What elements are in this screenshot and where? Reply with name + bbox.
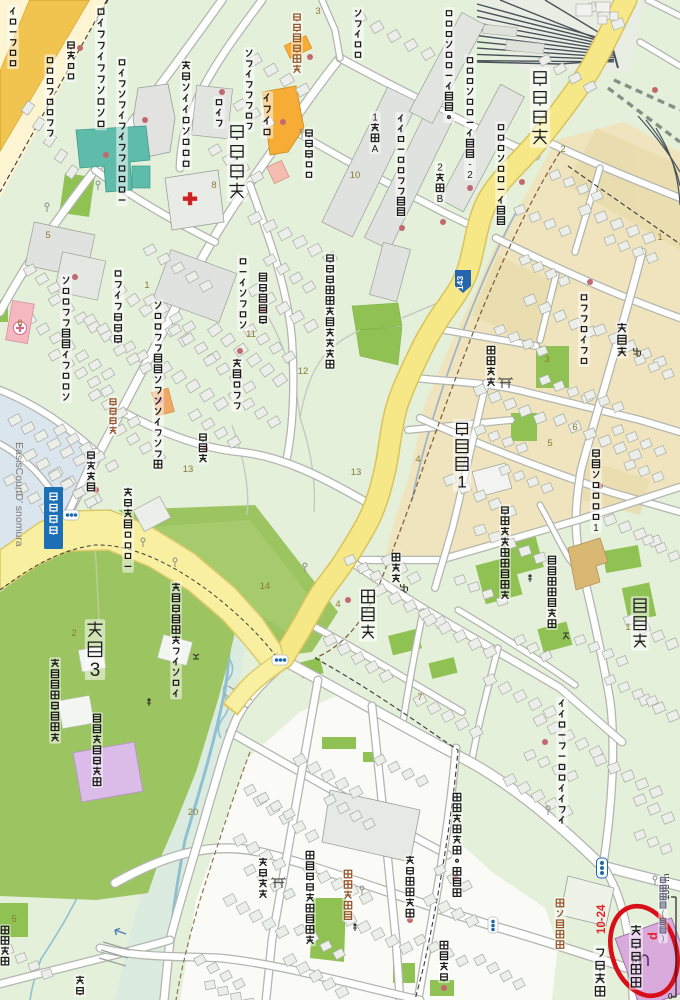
svg-text:6: 6 bbox=[17, 318, 22, 329]
svg-text:d: d bbox=[645, 932, 660, 940]
svg-text:5: 5 bbox=[45, 230, 50, 241]
svg-text:3: 3 bbox=[544, 354, 549, 365]
svg-text:A: A bbox=[372, 144, 379, 155]
svg-text:1: 1 bbox=[144, 280, 149, 291]
svg-text:0: 0 bbox=[668, 992, 673, 1000]
svg-text:13: 13 bbox=[351, 467, 362, 478]
svg-text:7: 7 bbox=[417, 692, 422, 703]
svg-text:2: 2 bbox=[437, 163, 443, 174]
svg-text:(: ( bbox=[662, 909, 665, 918]
svg-text:143: 143 bbox=[455, 276, 465, 290]
svg-text:5: 5 bbox=[11, 914, 16, 925]
svg-text:2: 2 bbox=[560, 144, 565, 155]
svg-text:13: 13 bbox=[183, 464, 194, 475]
svg-text:3: 3 bbox=[90, 660, 101, 681]
svg-text:3: 3 bbox=[315, 6, 320, 17]
svg-text:8: 8 bbox=[211, 180, 216, 191]
svg-text:1: 1 bbox=[657, 232, 662, 243]
svg-text:1: 1 bbox=[593, 523, 599, 534]
svg-text:2: 2 bbox=[467, 170, 473, 181]
svg-text:20: 20 bbox=[188, 807, 199, 818]
svg-text:6: 6 bbox=[572, 422, 577, 433]
svg-text:5: 5 bbox=[547, 438, 552, 449]
svg-text:2: 2 bbox=[71, 628, 76, 639]
svg-text:): ) bbox=[662, 934, 665, 943]
svg-text:11: 11 bbox=[246, 329, 256, 340]
svg-text:EasisCourtD’ snomura: EasisCourtD’ snomura bbox=[13, 442, 25, 547]
svg-text:B: B bbox=[437, 194, 444, 205]
svg-text:10: 10 bbox=[350, 170, 361, 181]
svg-text:10-24: 10-24 bbox=[596, 904, 608, 934]
svg-text:4: 4 bbox=[415, 454, 420, 465]
svg-text:-: - bbox=[468, 160, 471, 171]
svg-text:4: 4 bbox=[335, 599, 340, 610]
svg-text:14: 14 bbox=[260, 581, 271, 592]
svg-text:1: 1 bbox=[625, 622, 630, 633]
svg-text:1: 1 bbox=[457, 473, 466, 492]
svg-text:1: 1 bbox=[372, 113, 378, 124]
svg-text:12: 12 bbox=[298, 366, 309, 377]
